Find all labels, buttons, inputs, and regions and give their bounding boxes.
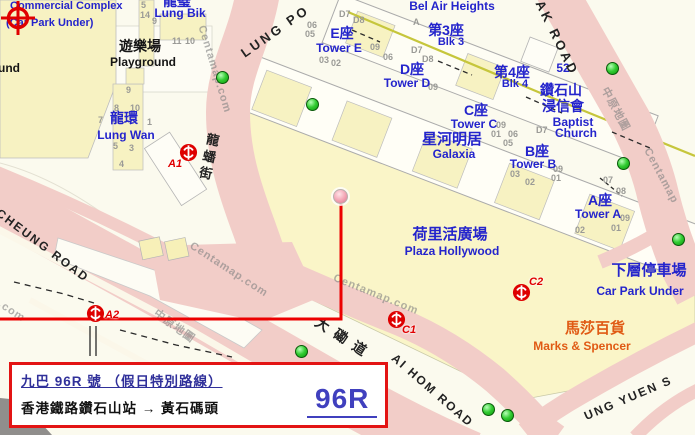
label-blk4-en: Blk 4 <box>502 79 528 90</box>
block-number-label: 02 <box>331 58 341 68</box>
block-number-label: 02 <box>575 225 585 235</box>
label-plaza-hollywood-en: Plaza Hollywood <box>405 245 500 257</box>
block-number-label: D7 <box>536 125 548 135</box>
block-number-label: 01 <box>551 173 561 183</box>
bus-stop-dot[interactable] <box>617 157 630 170</box>
block-number-label: 11 <box>172 36 182 46</box>
block-number-label: 02 <box>525 177 535 187</box>
block-number-label: 4 <box>119 159 124 169</box>
label-blk3-en: Blk 3 <box>438 37 464 48</box>
block-number-label: 5 <box>141 0 146 10</box>
block-number-label: 09 <box>370 42 380 52</box>
mtr-exit-marker-a2[interactable] <box>86 304 105 323</box>
label-lung-wan-en: Lung Wan <box>97 129 155 141</box>
block-number-label: 05 <box>305 29 315 39</box>
bus-stop-dot[interactable] <box>501 409 514 422</box>
block-number-label: 08 <box>616 186 626 196</box>
exit-label-a2: A2 <box>105 309 119 321</box>
label-lung-bik-en: Lung Bik <box>154 7 205 19</box>
label-tower-e-zh: E座 <box>330 26 353 40</box>
label-tower-d-en: Tower D <box>384 77 430 89</box>
label-lung-wan-zh: 龍環 <box>110 111 138 125</box>
exit-label-c2: C2 <box>529 276 543 288</box>
label-galaxia-zh: 星河明居 <box>422 132 482 147</box>
label-tower-c-zh: C座 <box>464 103 488 117</box>
label-playground-zh: 遊樂場 <box>119 39 161 53</box>
block-number-label: 10 <box>185 36 195 46</box>
label-edge-fragment: und <box>0 62 20 74</box>
block-number-label: 7 <box>98 115 103 125</box>
label-tower-a-zh: A座 <box>588 193 612 207</box>
block-number-label: 14 <box>140 10 150 20</box>
selected-stop-ball-marker[interactable] <box>333 189 348 204</box>
label-tower-b-en: Tower B <box>510 158 556 170</box>
block-number-label: 09 <box>620 213 630 223</box>
block-number-label: 03 <box>319 55 329 65</box>
block-number-label: 3 <box>129 143 134 153</box>
label-bel-air-heights: Bel Air Heights <box>409 0 495 12</box>
block-number-label: 07 <box>603 175 613 185</box>
label-tower-d-zh: D座 <box>400 62 424 76</box>
label-plaza-hollywood-zh: 荷里活廣場 <box>412 227 487 242</box>
label-baptist-zh2: 浸信會 <box>542 99 584 113</box>
label-playground-en: Playground <box>110 56 176 68</box>
map-target-crosshair-icon <box>0 0 36 36</box>
block-number-label: 5 <box>113 141 118 151</box>
label-tower-a-en: Tower A <box>575 208 621 220</box>
mtr-logo-icon <box>86 304 105 323</box>
label-carpark-en: Car Park Under <box>596 285 683 297</box>
bus-stop-dot[interactable] <box>216 71 229 84</box>
bus-stop-dot[interactable] <box>306 98 319 111</box>
exit-label-a1: A1 <box>168 158 182 170</box>
bus-stop-dot[interactable] <box>482 403 495 416</box>
label-carpark-zh: 下層停車場 <box>611 263 686 278</box>
label-baptist-zh1: 鑽石山 <box>540 83 582 97</box>
block-number-label: 06 <box>383 52 393 62</box>
exit-label-c1: C1 <box>402 324 416 336</box>
route-number-badge: 96R <box>307 383 377 418</box>
label-tower-e-en: Tower E <box>316 42 362 54</box>
block-number-label: 1 <box>147 117 152 127</box>
label-baptist-en2: Church <box>555 127 597 139</box>
block-number-label: 05 <box>503 138 513 148</box>
block-number-label: D8 <box>353 15 365 25</box>
block-number-label: 9 <box>126 85 131 95</box>
label-tower-c-en: Tower C <box>451 118 497 130</box>
bus-stop-dot[interactable] <box>672 233 685 246</box>
label-marks-spencer-en: Marks & Spencer <box>533 340 630 352</box>
block-number-label: A <box>413 17 420 27</box>
label-marks-spencer-zh: 馬莎百貨 <box>565 321 625 336</box>
bus-stop-dot[interactable] <box>606 62 619 75</box>
block-number-label: D7 <box>411 45 423 55</box>
block-number-label: 01 <box>611 223 621 233</box>
label-galaxia-en: Galaxia <box>433 148 476 160</box>
route-info-box: 九巴 96R 號 （假日特別路線） 香港鐵路鑽石山站 → 黃石碼頭 96R <box>9 362 388 428</box>
map-canvas[interactable]: Centamap.comCentamap.comCentamap.com中原地圖… <box>0 0 695 435</box>
block-number-label: D7 <box>339 9 351 19</box>
bus-stop-dot[interactable] <box>295 345 308 358</box>
